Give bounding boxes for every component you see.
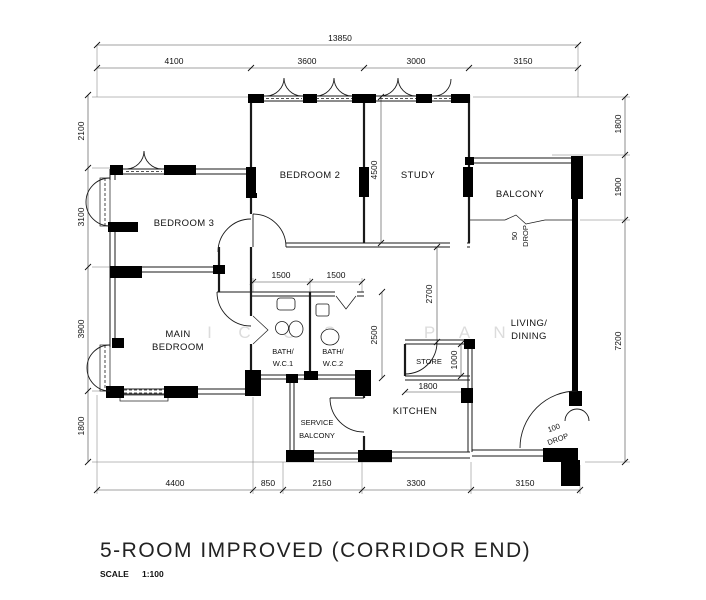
bath1-bifold-door <box>253 316 268 344</box>
dim-store-width: 1800 <box>419 381 438 391</box>
dim-left: 3900 <box>76 319 86 338</box>
dim-store-height: 1000 <box>449 350 459 369</box>
watermark-letter: I <box>207 323 213 342</box>
room-label-bedroom3: BEDROOM 3 <box>154 218 215 229</box>
dim-bath2-width: 1500 <box>327 270 346 280</box>
windows <box>86 78 451 393</box>
room-label-bath2: BATH/ <box>322 347 344 356</box>
wall-columns <box>106 94 583 486</box>
dim-left: 2100 <box>76 121 86 140</box>
room-label-bath1: BATH/ <box>272 347 294 356</box>
room-label-study: STUDY <box>401 170 435 181</box>
dim-bottom: 3150 <box>516 478 535 488</box>
dim-top: 3150 <box>514 56 533 66</box>
bedroom3-door-arc <box>218 219 251 252</box>
room-label-main-bedroom: MAIN <box>165 329 190 340</box>
dim-overall-width: 13850 <box>328 33 352 43</box>
room-label-bath2: W.C.2 <box>323 359 343 368</box>
watermark: I C O S P A N <box>207 323 507 342</box>
dim-right: 1800 <box>613 114 623 133</box>
dim-bottom: 4400 <box>166 478 185 488</box>
room-label-bath1: W.C.1 <box>273 359 293 368</box>
balcony-drop-value: 50 <box>510 232 519 240</box>
dim-bottom: 3300 <box>407 478 426 488</box>
dim-right: 1900 <box>613 177 623 196</box>
room-label-main-bedroom: BEDROOM <box>152 342 204 353</box>
bedroom2-door-arc <box>253 214 286 247</box>
room-label-bedroom2: BEDROOM 2 <box>280 170 341 181</box>
dim-top: 3000 <box>407 56 426 66</box>
room-label-balcony: BALCONY <box>496 189 544 200</box>
room-label-kitchen: KITCHEN <box>393 406 438 417</box>
room-labels: BEDROOM 2 STUDY BALCONY BEDROOM 3 MAIN B… <box>152 170 547 440</box>
title-block: 5-ROOM IMPROVED (CORRIDOR END) SCALE 1:1… <box>100 539 531 579</box>
watermark-letter: P <box>424 323 436 342</box>
service-balcony-door-arc <box>330 398 364 432</box>
bath2-bifold-door <box>336 296 356 309</box>
floor-plan-drawing: I C O S P A N <box>0 0 706 600</box>
dim-bath-depth: 2500 <box>369 325 379 344</box>
dim-top: 3600 <box>298 56 317 66</box>
dim-bath1-width: 1500 <box>272 270 291 280</box>
dim-left: 3100 <box>76 207 86 226</box>
room-label-living-dining: DINING <box>511 331 547 342</box>
drawing-title: 5-ROOM IMPROVED (CORRIDOR END) <box>100 539 531 562</box>
dim-top: 4100 <box>165 56 184 66</box>
scale-label: SCALE <box>100 569 129 579</box>
floor-plan-sheet: I C O S P A N <box>0 0 706 600</box>
balcony-drop-word: DROP <box>521 225 530 247</box>
room-label-service-balcony: BALCONY <box>299 431 335 440</box>
main-bedroom-door-arc <box>217 292 251 326</box>
dim-bottom: 850 <box>261 478 275 488</box>
scale-value: 1:100 <box>142 569 164 579</box>
dim-bedroom-depth: 4500 <box>369 160 379 179</box>
room-label-store: STORE <box>416 357 442 366</box>
dim-bottom: 2150 <box>313 478 332 488</box>
watermark-letter: N <box>493 323 506 342</box>
dim-living-width: 2700 <box>424 284 434 303</box>
dim-right: 7200 <box>613 331 623 350</box>
room-label-living-dining: LIVING/ <box>511 318 548 329</box>
dim-left: 1800 <box>76 416 86 435</box>
room-label-service-balcony: SERVICE <box>301 418 334 427</box>
entry-drop-value: 100 <box>546 422 561 435</box>
